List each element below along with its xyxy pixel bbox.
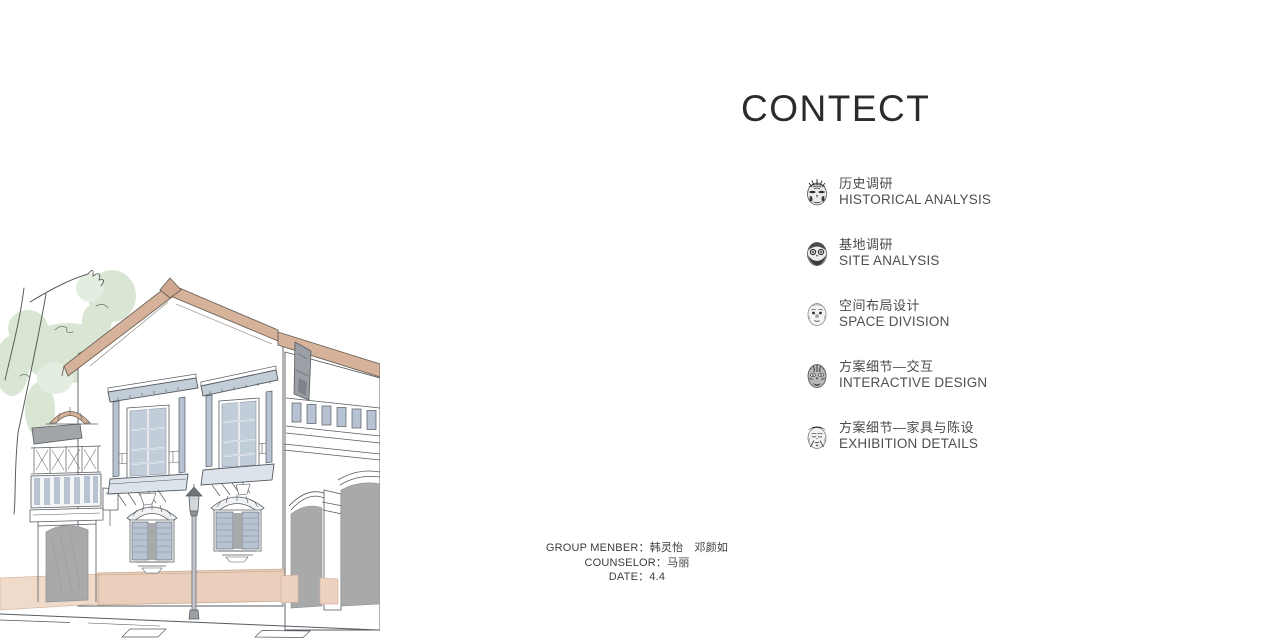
toc-label-zh: 方案细节—家具与陈设 [839,420,978,436]
date-label: DATE： [609,571,650,583]
group-member-label: GROUP MENBER： [546,542,650,554]
toc-item-historical-analysis: 历史调研 HISTORICAL ANALYSIS [804,176,991,210]
building-sketch-illustration [0,258,380,640]
toc-label-zh: 历史调研 [839,176,991,192]
toc-label-en: HISTORICAL ANALYSIS [839,192,991,208]
toc-item-site-analysis: 基地调研 SITE ANALYSIS [804,237,991,271]
opera-mask-elder-icon [804,421,830,451]
toc-item-interactive-design: 方案细节—交互 INTERACTIVE DESIGN [804,359,991,393]
counselor-label: COUNSELOR： [584,557,667,569]
opera-mask-bearded-icon [804,238,830,268]
toc-label-en: SITE ANALYSIS [839,253,940,269]
toc-item-exhibition-details: 方案细节—家具与陈设 EXHIBITION DETAILS [804,420,991,454]
slide-page: CONTECT 历史调研 HISTORICAL ANALYSIS [0,0,1280,640]
group-member-names: 韩灵怡 邓颜如 [650,542,728,554]
opera-mask-dark-icon [804,360,830,390]
opera-mask-jing-icon [804,177,830,207]
toc-label-en: INTERACTIVE DESIGN [839,375,987,391]
page-title: CONTECT [741,88,930,130]
toc-label-zh: 方案细节—交互 [839,359,987,375]
credit-line-date: DATE：4.4 [507,570,767,585]
right-building [278,332,380,630]
toc-label-zh: 基地调研 [839,237,940,253]
counselor-name: 马丽 [667,557,689,569]
credits-block: GROUP MENBER：韩灵怡 邓颜如 COUNSELOR：马丽 DATE：4… [507,541,767,585]
toc-label-en: EXHIBITION DETAILS [839,436,978,452]
contents-list: 历史调研 HISTORICAL ANALYSIS 基地调研 SITE ANALY… [804,176,991,481]
toc-item-space-division: 空间布局设计 SPACE DIVISION [804,298,991,332]
toc-label-en: SPACE DIVISION [839,314,950,330]
toc-label-zh: 空间布局设计 [839,298,950,314]
credit-line-group-member: GROUP MENBER：韩灵怡 邓颜如 [507,541,767,556]
credit-line-counselor: COUNSELOR：马丽 [507,556,767,571]
date-value: 4.4 [649,571,665,583]
opera-mask-clown-icon [804,299,830,329]
